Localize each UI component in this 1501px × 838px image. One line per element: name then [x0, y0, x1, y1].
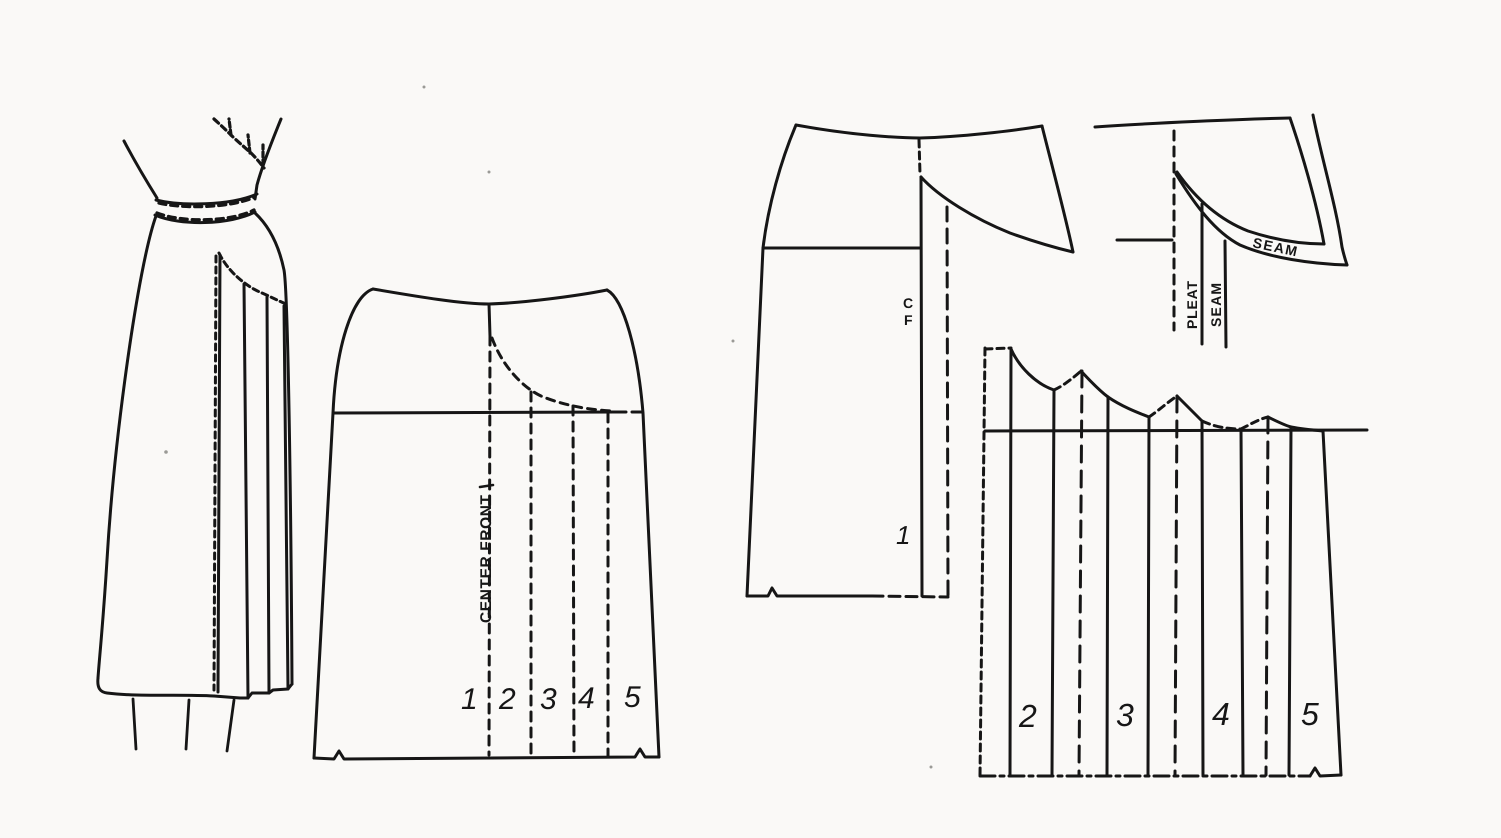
svg-text:PLEAT: PLEAT: [1184, 280, 1200, 329]
svg-text:4: 4: [1212, 696, 1230, 732]
svg-text:3: 3: [540, 683, 557, 716]
svg-text:4: 4: [578, 682, 595, 715]
svg-text:C: C: [903, 295, 913, 311]
svg-text:CENTER FRONT: CENTER FRONT: [478, 494, 495, 623]
svg-text:F: F: [904, 312, 913, 328]
svg-text:5: 5: [1301, 696, 1319, 732]
svg-text:SEAM: SEAM: [1208, 282, 1224, 327]
svg-text:3: 3: [1116, 697, 1134, 733]
svg-text:2: 2: [1018, 698, 1037, 734]
svg-text:1: 1: [461, 683, 478, 716]
svg-text:5: 5: [624, 681, 641, 714]
svg-text:2: 2: [498, 683, 516, 716]
svg-text:1: 1: [896, 520, 910, 550]
